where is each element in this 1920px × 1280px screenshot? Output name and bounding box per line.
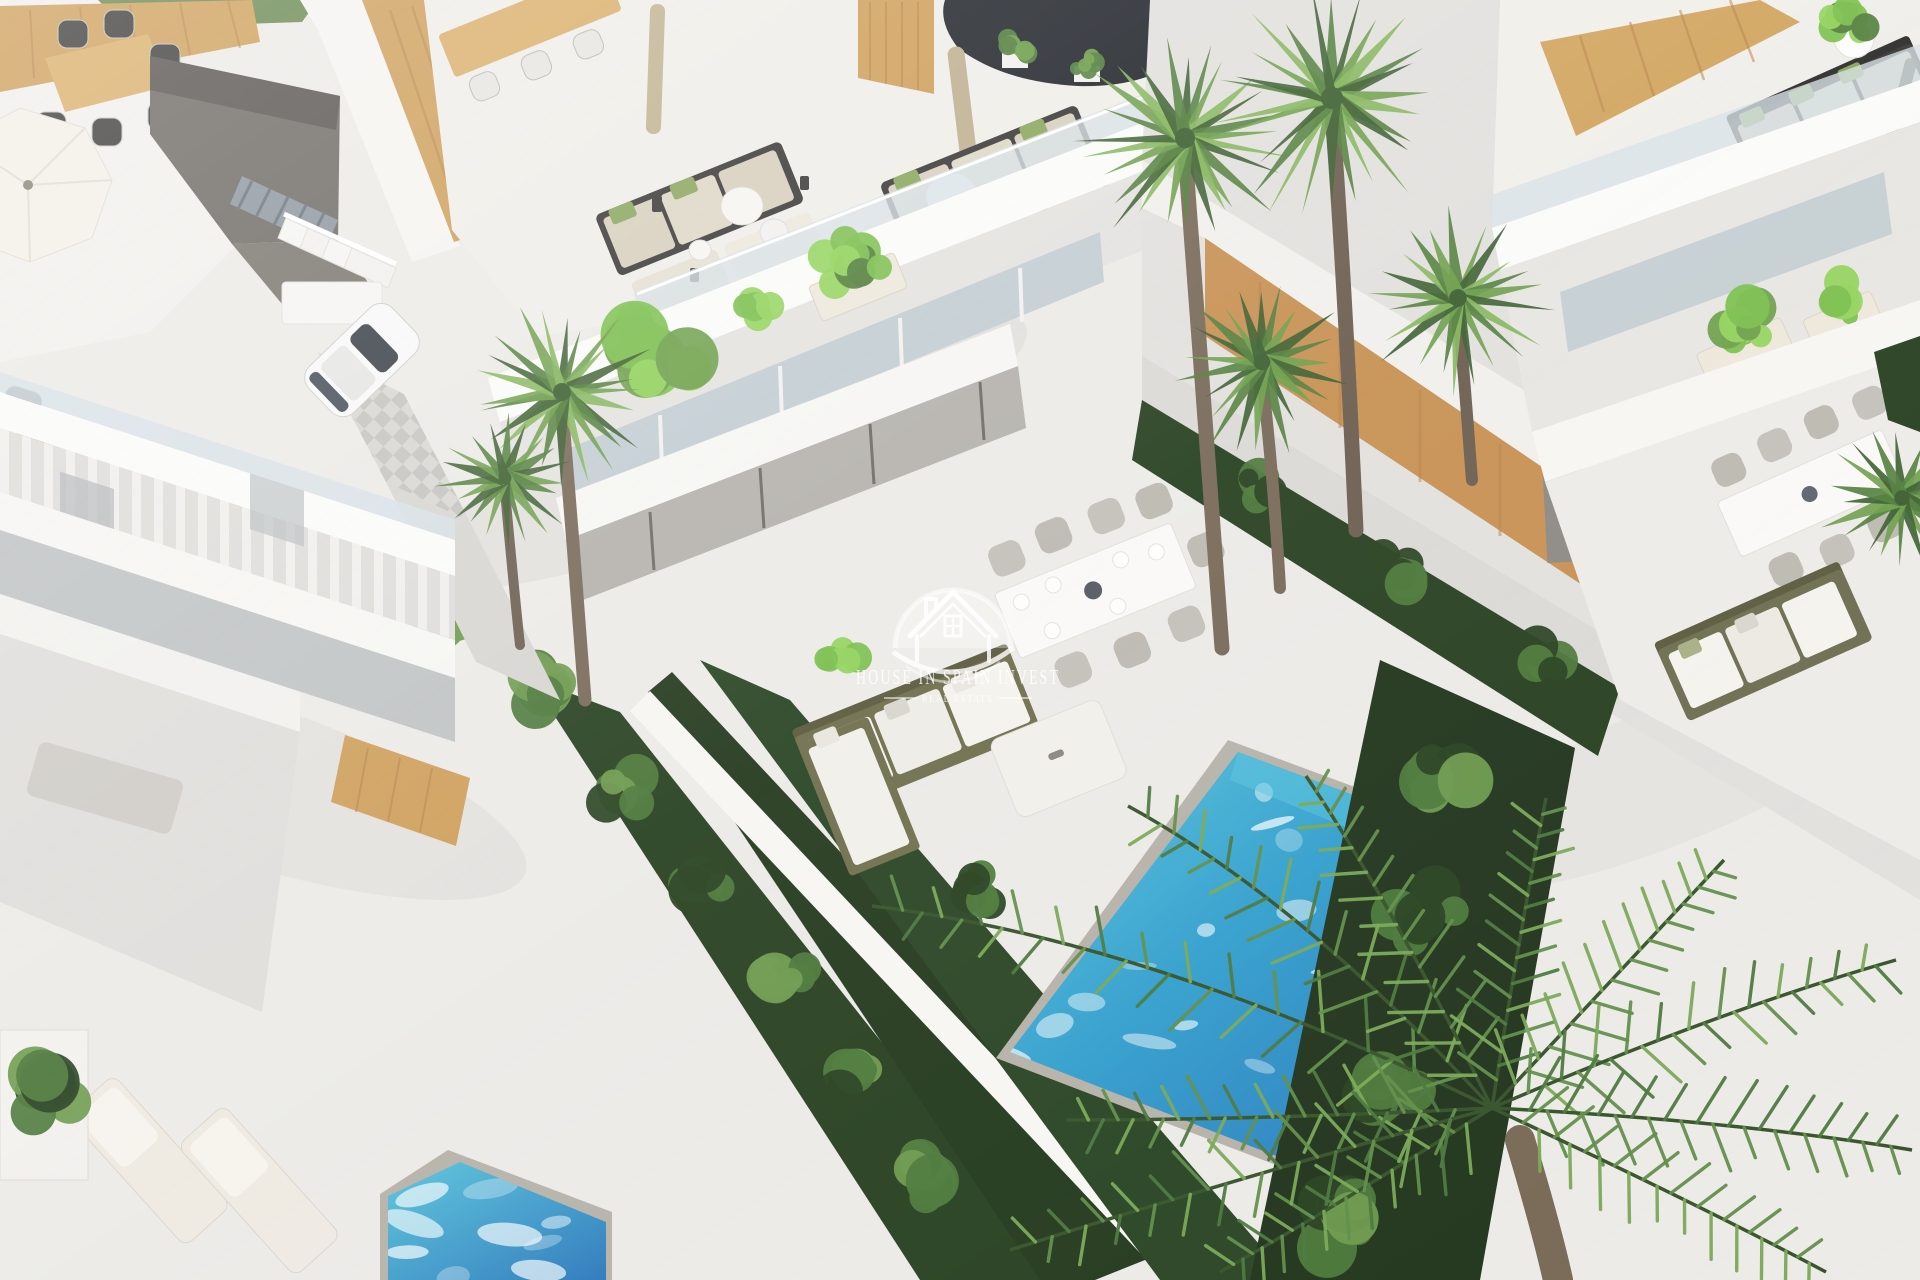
watermark-brand-name: HOUSE IN SPAIN INVEST [856, 665, 1060, 689]
villa-render-scene: HOUSE IN SPAIN INVEST REAL ESTATE [0, 0, 1920, 1280]
watermark-tagline: REAL ESTATE [922, 693, 994, 705]
render-canvas: HOUSE IN SPAIN INVEST REAL ESTATE [0, 0, 1920, 1280]
